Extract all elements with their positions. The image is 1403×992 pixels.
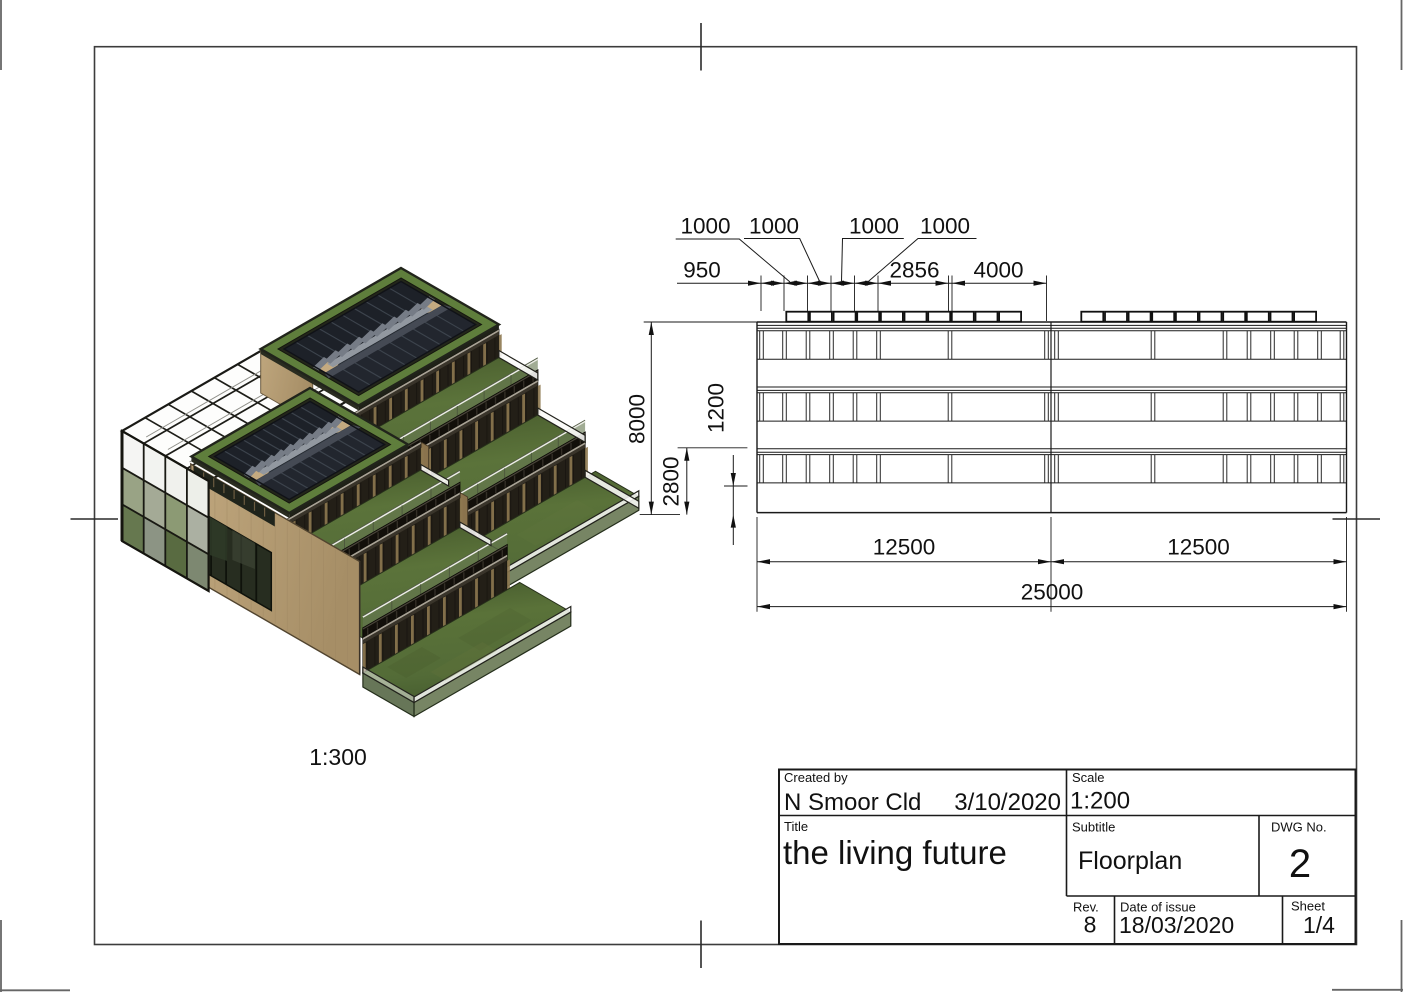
svg-text:the living future: the living future [783, 834, 1007, 871]
svg-text:2856: 2856 [889, 258, 939, 283]
svg-text:1:200: 1:200 [1070, 788, 1130, 815]
svg-text:1200: 1200 [704, 383, 729, 433]
svg-text:3/10/2020: 3/10/2020 [954, 789, 1061, 816]
svg-text:18/03/2020: 18/03/2020 [1119, 912, 1234, 938]
svg-text:Floorplan: Floorplan [1078, 847, 1182, 875]
svg-text:Scale: Scale [1072, 770, 1105, 785]
svg-text:1:300: 1:300 [309, 744, 367, 770]
svg-text:8: 8 [1084, 912, 1097, 938]
svg-text:Subtitle: Subtitle [1072, 820, 1115, 835]
svg-text:1000: 1000 [849, 213, 899, 238]
svg-text:1/4: 1/4 [1303, 912, 1335, 938]
svg-text:Title: Title [784, 819, 808, 834]
svg-text:12500: 12500 [1167, 535, 1230, 560]
svg-text:1000: 1000 [749, 213, 799, 238]
svg-text:12500: 12500 [873, 535, 936, 560]
svg-text:1000: 1000 [680, 213, 730, 238]
svg-text:Created by: Created by [784, 770, 848, 785]
svg-text:1000: 1000 [920, 213, 970, 238]
svg-text:DWG No.: DWG No. [1271, 820, 1327, 835]
svg-text:2800: 2800 [659, 456, 684, 506]
svg-text:4000: 4000 [973, 258, 1023, 283]
svg-text:25000: 25000 [1021, 580, 1084, 605]
svg-text:N Smoor Cld: N Smoor Cld [784, 789, 921, 816]
svg-text:2: 2 [1289, 842, 1311, 886]
svg-text:950: 950 [683, 258, 721, 283]
svg-text:8000: 8000 [625, 394, 650, 444]
